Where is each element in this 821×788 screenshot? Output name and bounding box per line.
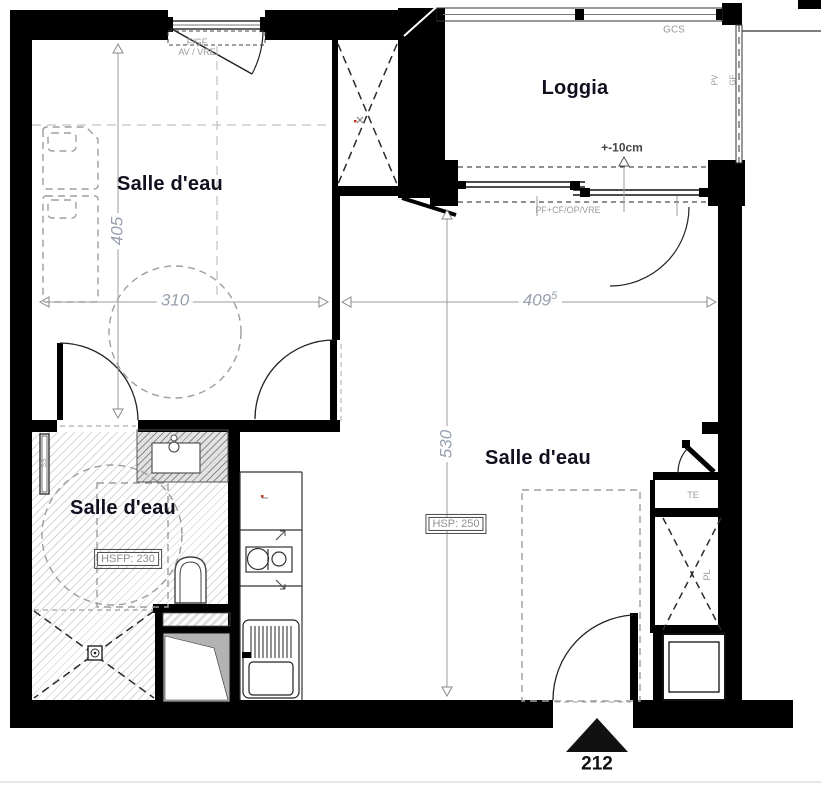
bathroom-door-leaf: [57, 343, 63, 420]
living-height-dim: 530: [438, 426, 457, 462]
ceiling-height-bathroom: HSFP: 230: [97, 552, 159, 566]
kitchen-burner: [272, 552, 286, 566]
dim-sup: 5: [551, 290, 557, 302]
loggia-bay-window: [458, 157, 710, 286]
bedroom-label: Salle d'eau: [117, 173, 223, 195]
pv-label: PV: [712, 75, 721, 86]
shaft-vent-mark: [354, 117, 363, 123]
faucet: [169, 442, 179, 452]
bathroom-label: Salle d'eau: [70, 497, 176, 519]
te-door-arc: [678, 448, 688, 473]
bed-pillow-1: [48, 133, 76, 151]
bedroom-door-arc: [255, 340, 334, 419]
bedroom-width-dim: 310: [157, 292, 193, 311]
technical-shaft: [338, 44, 397, 184]
bedroom-door-leaf: [330, 340, 337, 420]
pl-closet-label: PL: [703, 569, 713, 580]
living-width-dim: 4095: [519, 290, 562, 310]
ceiling-height-living: HSP: 250: [428, 517, 483, 531]
entrance-triangle: [566, 718, 628, 752]
entrance-door-leaf: [630, 613, 638, 700]
plan-drawing: [0, 0, 821, 788]
te-door-leaf: [686, 446, 714, 472]
bathroom-turning-circle: [42, 465, 182, 605]
lower-right-cell: [663, 634, 725, 700]
loggia-guardrail-top: [437, 8, 722, 21]
level-arrow: [619, 157, 629, 166]
exterior-walls: [10, 0, 821, 728]
bathroom-door-arc: [60, 343, 138, 420]
loggia-level-note: +-10cm: [601, 141, 643, 154]
appliance-vents: [251, 626, 291, 658]
bed-pillow-2: [48, 200, 76, 218]
bay-opening-arc: [610, 207, 689, 286]
kitchen-sink-bowl: [248, 549, 269, 570]
towel-rail-label: SS: [41, 458, 49, 467]
guardrail-label: GCS: [663, 25, 685, 36]
bedroom-turning-circle: [109, 266, 241, 398]
bed-outline-1: [43, 127, 98, 189]
bedroom-height-dim: 405: [109, 213, 128, 249]
loggia-label: Loggia: [542, 77, 609, 99]
appliance-door: [249, 662, 293, 695]
dim-value: 409: [523, 290, 551, 309]
unit-number: 212: [581, 755, 613, 776]
window-label-2: AV / VRE: [178, 48, 215, 58]
gf-label: GF: [730, 74, 739, 85]
bed-outline-2: [43, 196, 98, 302]
te-closet-label: TE: [687, 491, 699, 501]
floor-plan: Salle d'eau Salle d'eau Salle d'eau Logg…: [0, 0, 821, 788]
kitchenette: [240, 472, 302, 700]
counter-arrows: [276, 531, 285, 589]
entrance-door-arc: [553, 615, 633, 700]
living-furniture-zone: [522, 490, 640, 701]
bay-window-label: PF+CF/OP/VRE: [535, 206, 600, 216]
living-label: Salle d'eau: [485, 447, 591, 469]
loggia-guardrail-right: [736, 25, 742, 163]
